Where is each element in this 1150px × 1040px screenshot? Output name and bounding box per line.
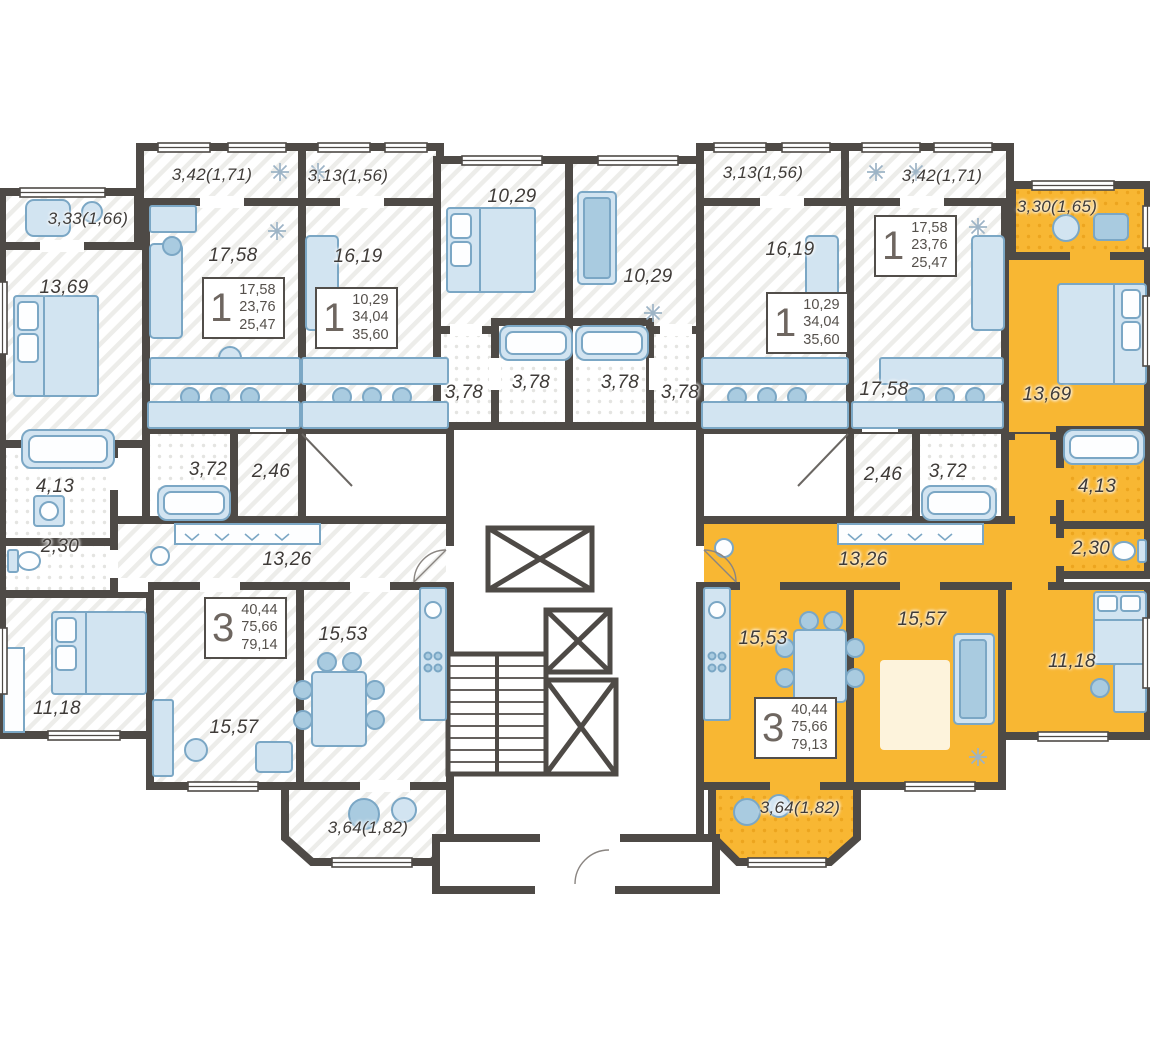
bed-icon — [14, 296, 98, 396]
staircase — [448, 654, 546, 774]
label-bedroom-1369-right: 13,69 — [1022, 384, 1071, 406]
building-core — [436, 426, 716, 890]
card-area-3: 35,60 — [352, 327, 388, 344]
card-area-1: 40,44 — [791, 702, 827, 719]
label-bath-372-left: 3,72 — [189, 459, 227, 481]
label-hall-378-a: 3,78 — [445, 382, 483, 404]
label-living-1758-left: 17,58 — [208, 245, 257, 267]
coffee-table-icon — [185, 739, 207, 761]
label-balcony-364-right: 3,64(1,82) — [760, 798, 841, 818]
card-rooms-count: 3 — [762, 709, 784, 747]
label-hall-378-b: 3,78 — [661, 382, 699, 404]
label-balcony-313-right: 3,13(1,56) — [723, 163, 804, 183]
bathtub-icon — [22, 430, 114, 468]
label-kitchen-1553-right: 15,53 — [738, 628, 787, 650]
card-area-3: 79,13 — [791, 737, 827, 754]
label-balcony-333-left: 3,33(1,66) — [48, 209, 129, 229]
label-hall-1326-right: 13,26 — [838, 549, 887, 571]
label-wc-230-right: 2,30 — [1072, 538, 1110, 560]
card-area-3: 35,60 — [803, 332, 839, 349]
wardrobe-icon — [175, 524, 320, 544]
label-bath-378-b: 3,78 — [601, 372, 639, 394]
bathtub-icon — [576, 326, 648, 360]
label-balcony-342-left: 3,42(1,71) — [172, 165, 253, 185]
label-living-1619-left: 16,19 — [333, 246, 382, 268]
label-bedroom-1369-left: 13,69 — [39, 277, 88, 299]
label-bath-372-right: 3,72 — [929, 461, 967, 483]
label-hall-1326-left: 13,26 — [262, 549, 311, 571]
plan-svg — [0, 0, 1150, 1040]
apartment-card-1room-a[interactable]: 1 17,58 23,76 25,47 — [202, 277, 285, 339]
label-hall-246-left: 2,46 — [252, 461, 290, 483]
label-living-1619-right: 16,19 — [765, 239, 814, 261]
apartment-card-3room-left[interactable]: 3 40,44 75,66 79,14 — [204, 597, 287, 659]
floor-plan: 3,33(1,66) 3,42(1,71) 3,13(1,56) 10,29 1… — [0, 0, 1150, 1040]
label-bath-378-a: 3,78 — [512, 372, 550, 394]
card-area-3: 79,14 — [241, 637, 277, 654]
label-balcony-313-left: 3,13(1,56) — [308, 166, 389, 186]
label-balcony-364-left: 3,64(1,82) — [328, 818, 409, 838]
vent-icon — [151, 547, 169, 565]
toilet-icon — [1113, 540, 1146, 562]
sofa-icon — [972, 236, 1004, 330]
bed-icon — [1094, 592, 1146, 664]
apartment-card-1room-b[interactable]: 1 10,29 34,04 35,60 — [315, 287, 398, 349]
card-rooms-count: 1 — [882, 227, 904, 265]
card-rooms-count: 1 — [323, 299, 345, 337]
kitchen-counter-icon — [704, 588, 730, 720]
entrance-vestibule — [436, 838, 716, 890]
label-hall-246-right: 2,46 — [864, 464, 902, 486]
card-area-1: 17,58 — [911, 220, 947, 237]
bed-icon — [52, 612, 146, 694]
card-rooms-count: 3 — [212, 609, 234, 647]
label-living-1557-right: 15,57 — [897, 609, 946, 631]
bathtub-icon — [500, 326, 572, 360]
room-entry-right — [1005, 436, 1060, 524]
vent-icon — [715, 539, 733, 557]
card-area-2: 23,76 — [911, 237, 947, 254]
sofa-icon — [954, 634, 994, 724]
label-bedroom-1118-right: 11,18 — [1048, 651, 1096, 673]
apartment-card-1room-d[interactable]: 1 17,58 23,76 25,47 — [874, 215, 957, 277]
bathtub-icon — [1064, 430, 1144, 464]
apartment-card-3room-right-highlighted[interactable]: 3 40,44 75,66 79,13 — [754, 697, 837, 759]
card-area-2: 23,76 — [239, 299, 275, 316]
armchair-icon — [256, 742, 292, 772]
card-rooms-count: 1 — [774, 304, 796, 342]
label-balcony-342-right: 3,42(1,71) — [902, 166, 983, 186]
kitchen-counter-icon — [420, 588, 446, 720]
sofa-icon — [150, 244, 182, 338]
card-area-1: 17,58 — [239, 282, 275, 299]
rug-icon — [880, 660, 950, 750]
apartment-card-1room-c[interactable]: 1 10,29 34,04 35,60 — [766, 292, 849, 354]
toilet-icon — [8, 550, 40, 572]
bed-icon — [447, 208, 535, 292]
label-kitchen-1553-left: 15,53 — [318, 624, 367, 646]
label-bedroom-1029-left: 10,29 — [487, 186, 536, 208]
label-balcony-330-right: 3,30(1,65) — [1017, 197, 1098, 217]
bathtub-icon — [922, 486, 996, 520]
label-bath-413-left: 4,13 — [36, 476, 74, 498]
card-area-2: 75,66 — [241, 619, 277, 636]
bed-icon — [1058, 284, 1146, 384]
label-bath-413-right: 4,13 — [1078, 476, 1116, 498]
card-area-2: 34,04 — [803, 314, 839, 331]
card-rooms-count: 1 — [210, 289, 232, 327]
card-area-3: 25,47 — [911, 255, 947, 272]
label-living-1758-right: 17,58 — [859, 379, 908, 401]
card-area-1: 10,29 — [803, 297, 839, 314]
tv-cabinet-icon — [153, 700, 173, 776]
label-living-1557-left: 15,57 — [209, 717, 258, 739]
bathtub-icon — [158, 486, 230, 520]
label-wc-230-left: 2,30 — [41, 536, 79, 558]
label-bedroom-1118-left: 11,18 — [33, 698, 81, 720]
washing-machine-icon — [34, 496, 64, 526]
card-area-3: 25,47 — [239, 317, 275, 334]
label-bedroom-1029-right: 10,29 — [623, 266, 672, 288]
card-area-2: 34,04 — [352, 309, 388, 326]
card-area-2: 75,66 — [791, 719, 827, 736]
wardrobe-icon — [838, 524, 983, 544]
sofa-icon — [578, 192, 616, 284]
card-area-1: 10,29 — [352, 292, 388, 309]
card-area-1: 40,44 — [241, 602, 277, 619]
